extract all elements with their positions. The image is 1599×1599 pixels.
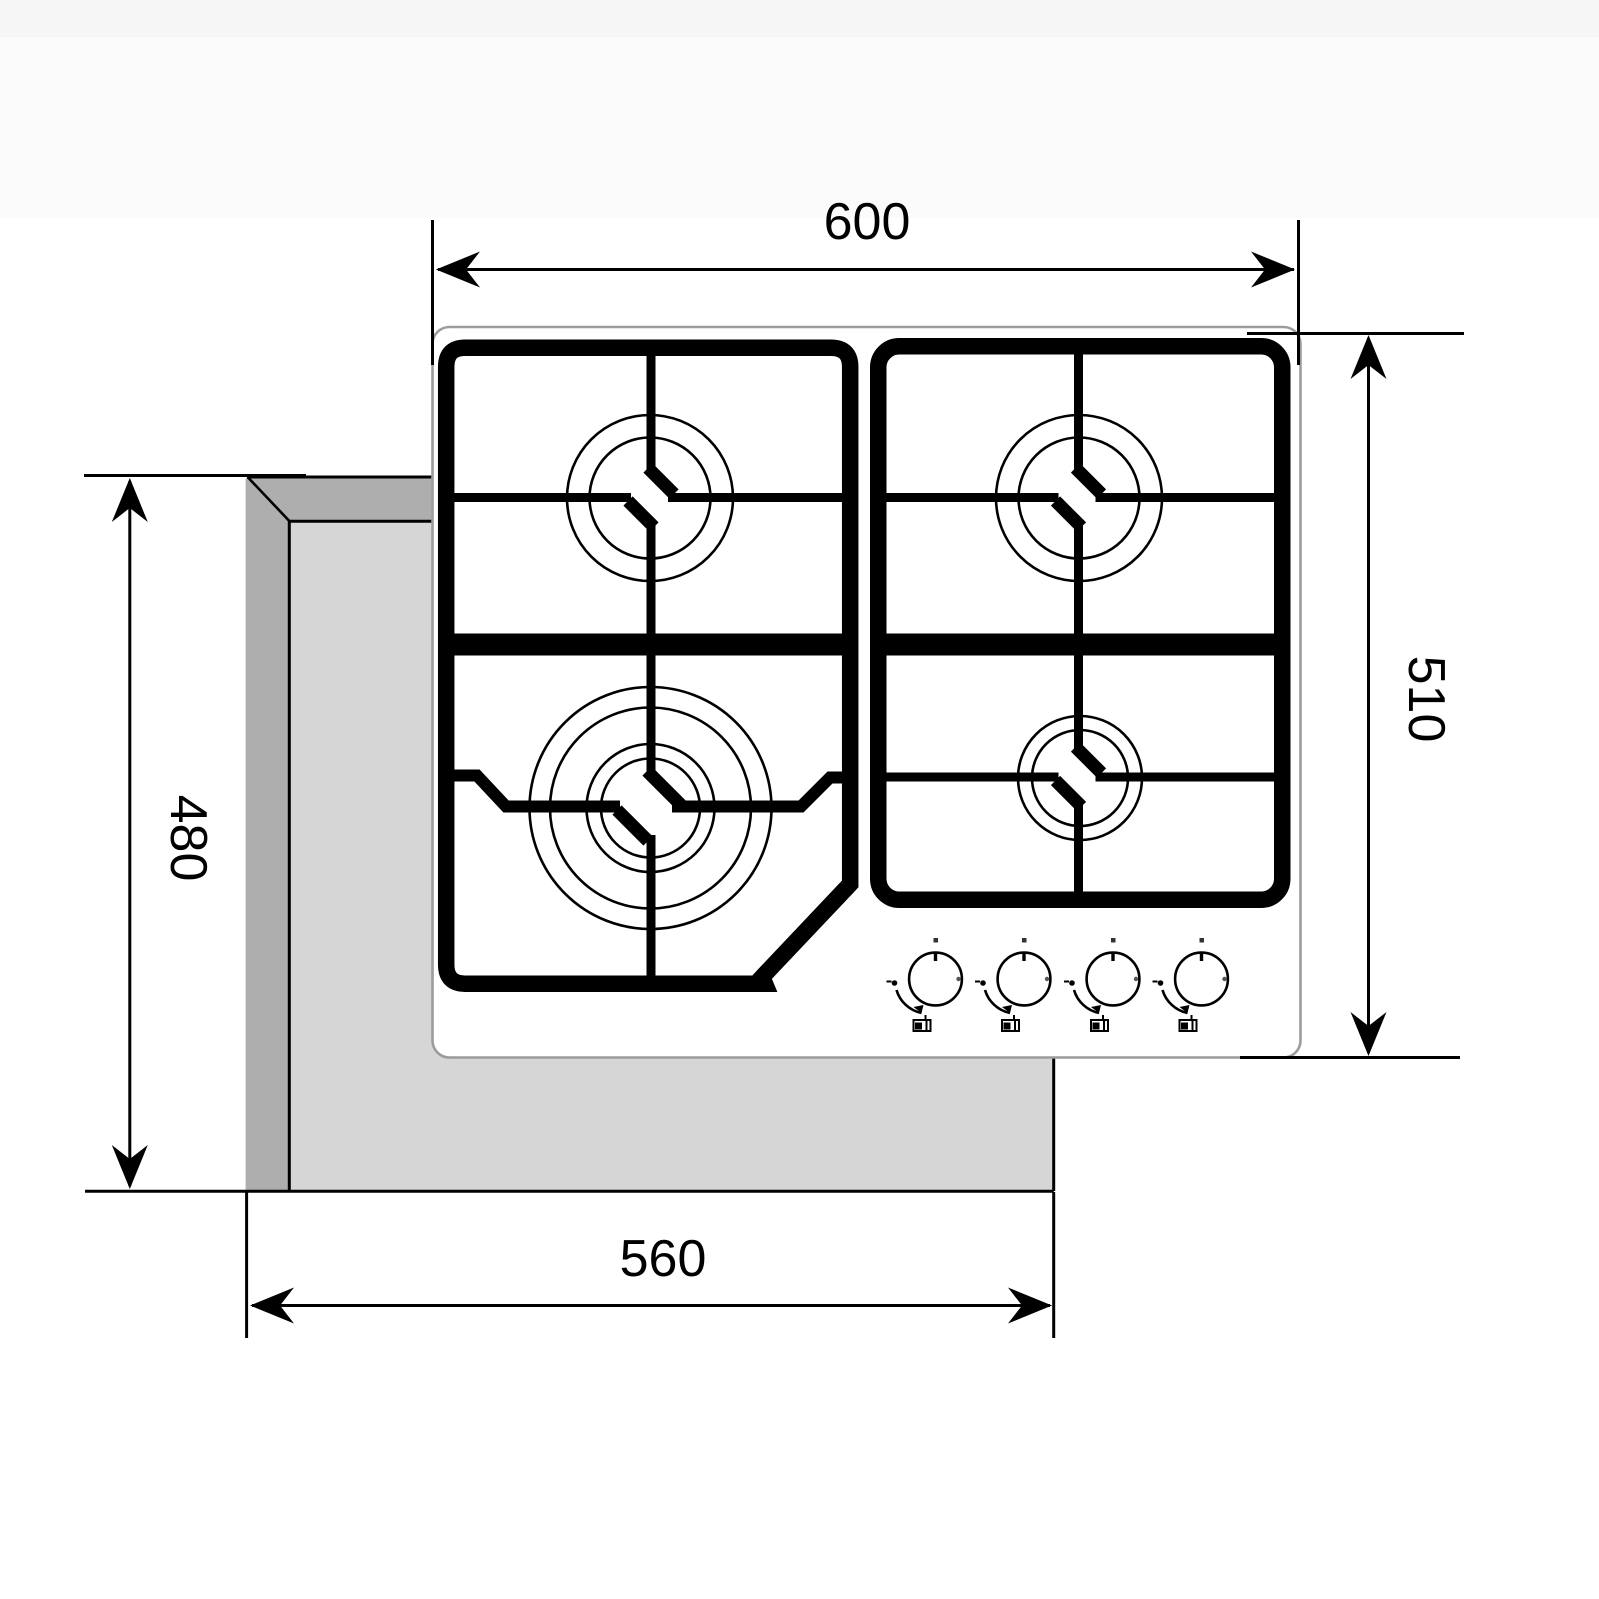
svg-text:600: 600: [824, 193, 911, 251]
svg-text:560: 560: [620, 1230, 707, 1288]
svg-text:480: 480: [159, 795, 217, 882]
svg-text:510: 510: [1397, 656, 1455, 743]
